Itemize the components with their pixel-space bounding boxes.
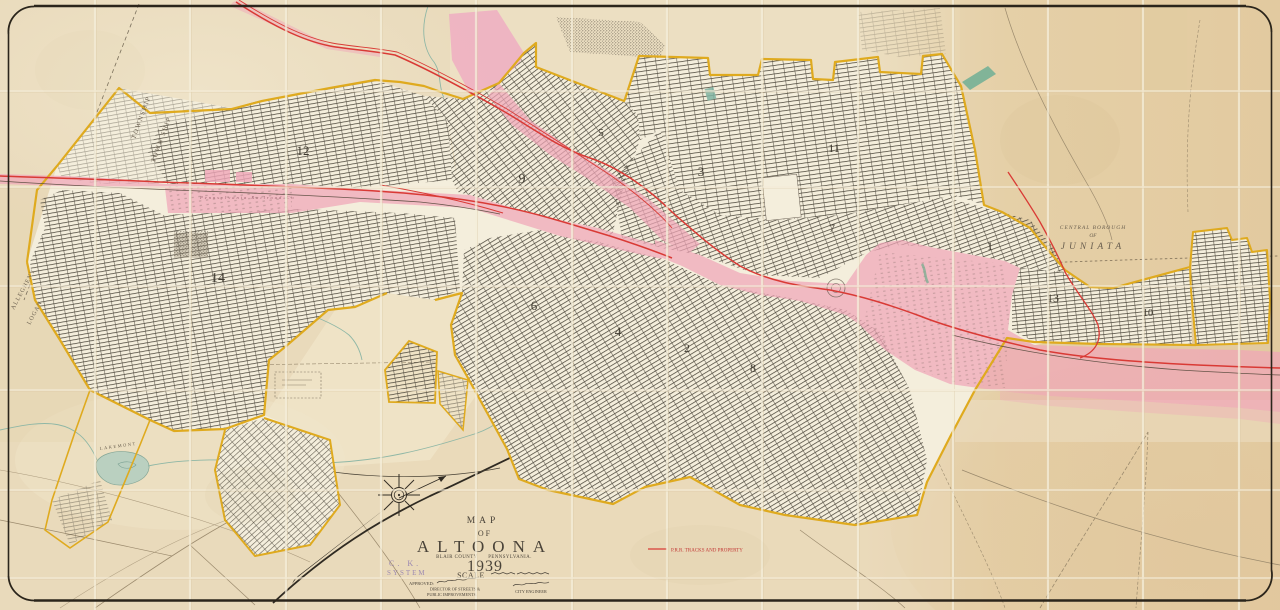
svg-text:2: 2 — [684, 341, 690, 355]
svg-text:C. K.: C. K. — [389, 559, 421, 568]
svg-text:JUNIATA: JUNIATA — [1061, 242, 1125, 252]
svg-text:ALTOONA: ALTOONA — [417, 537, 553, 556]
svg-text:Pennsylvania Railroad Co: Pennsylvania Railroad Co — [199, 195, 296, 200]
svg-text:12: 12 — [297, 143, 310, 158]
svg-text:7: 7 — [829, 221, 835, 235]
svg-text:1: 1 — [987, 239, 993, 253]
svg-text:APPROVED:: APPROVED: — [409, 581, 434, 586]
svg-text:PUBLIC IMPROVEMENTS.: PUBLIC IMPROVEMENTS. — [427, 592, 477, 597]
svg-text:CITY ENGINEER: CITY ENGINEER — [515, 589, 547, 594]
svg-text:4: 4 — [615, 324, 622, 339]
svg-text:9: 9 — [519, 172, 526, 187]
svg-text:5: 5 — [598, 127, 604, 139]
svg-text:3: 3 — [698, 164, 705, 179]
svg-text:CENTRAL BOROUGH: CENTRAL BOROUGH — [1060, 225, 1126, 231]
svg-text:8: 8 — [750, 361, 756, 375]
svg-text:6: 6 — [531, 298, 538, 313]
svg-text:MAP: MAP — [467, 516, 500, 526]
svg-text:OF: OF — [1089, 233, 1097, 239]
svg-text:DIRECTOR OF STREETS &: DIRECTOR OF STREETS & — [430, 587, 481, 592]
svg-text:14: 14 — [211, 271, 225, 286]
svg-text:11: 11 — [828, 141, 840, 155]
svg-text:SYSTEM: SYSTEM — [387, 569, 427, 577]
